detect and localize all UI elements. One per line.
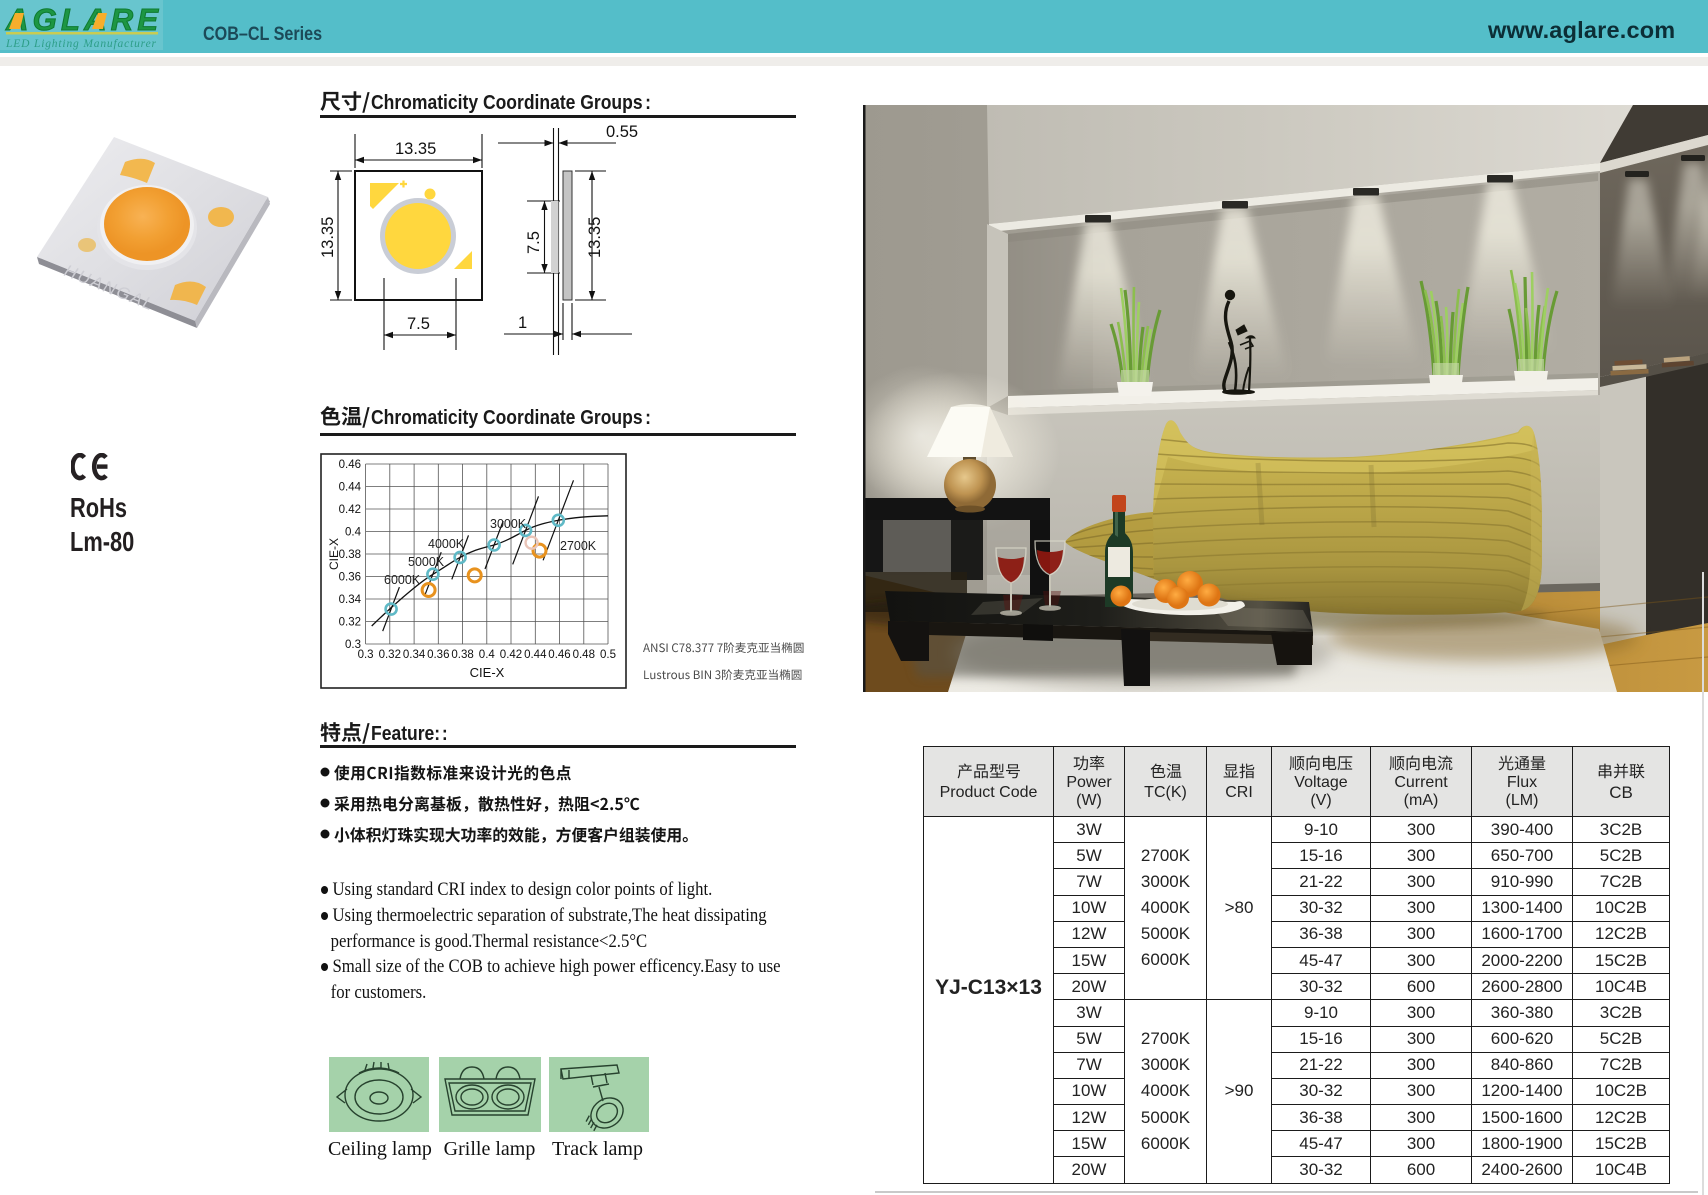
svg-text:0.36: 0.36 [427,649,449,661]
svg-text:0.42: 0.42 [500,649,522,661]
svg-text:13.35: 13.35 [395,140,436,158]
svg-text:0.46: 0.46 [339,459,361,471]
svg-text:1: 1 [518,314,527,332]
svg-text:0.36: 0.36 [339,572,361,584]
svg-text:0.42: 0.42 [339,504,361,516]
svg-text:0.55: 0.55 [606,123,638,141]
svg-text:AGLARE: AGLARE [5,2,159,37]
svg-text:0.46: 0.46 [548,649,570,661]
svg-text:4000K: 4000K [428,537,465,551]
svg-text:0.38: 0.38 [339,549,361,561]
svg-text:0.3: 0.3 [358,649,374,661]
svg-text:LED Lighting Manufacturer: LED Lighting Manufacturer [5,38,157,50]
svg-text:Feature::: Feature:: [371,723,448,746]
svg-text:Chromaticity Coordinate Groups: Chromaticity Coordinate Groups: [371,407,651,430]
svg-text:CIE-X: CIE-X [470,665,505,680]
svg-text:13.35: 13.35 [586,217,604,258]
svg-text:0.44: 0.44 [524,649,547,661]
svg-text:0.34: 0.34 [339,594,362,606]
svg-text:0.38: 0.38 [451,649,473,661]
svg-text:0.32: 0.32 [379,649,401,661]
svg-text:13.35: 13.35 [319,217,337,258]
svg-text:6000K: 6000K [384,573,421,587]
svg-text:0.4: 0.4 [345,527,362,539]
svg-text:0.4: 0.4 [479,649,496,661]
svg-text:7.5: 7.5 [525,231,543,254]
svg-text:7.5: 7.5 [407,315,430,333]
svg-text:Chromaticity Coordinate Groups: Chromaticity Coordinate Groups: [371,91,651,114]
svg-text:CIE-X: CIE-X [327,538,341,570]
svg-text:0.32: 0.32 [339,617,361,629]
svg-text:3000K: 3000K [490,517,527,531]
svg-text:0.5: 0.5 [600,649,616,661]
svg-text:0.48: 0.48 [573,649,595,661]
svg-text:5000K: 5000K [408,555,445,569]
svg-text:2700K: 2700K [560,539,597,553]
svg-text:0.44: 0.44 [339,482,362,494]
svg-text:0.34: 0.34 [403,649,426,661]
